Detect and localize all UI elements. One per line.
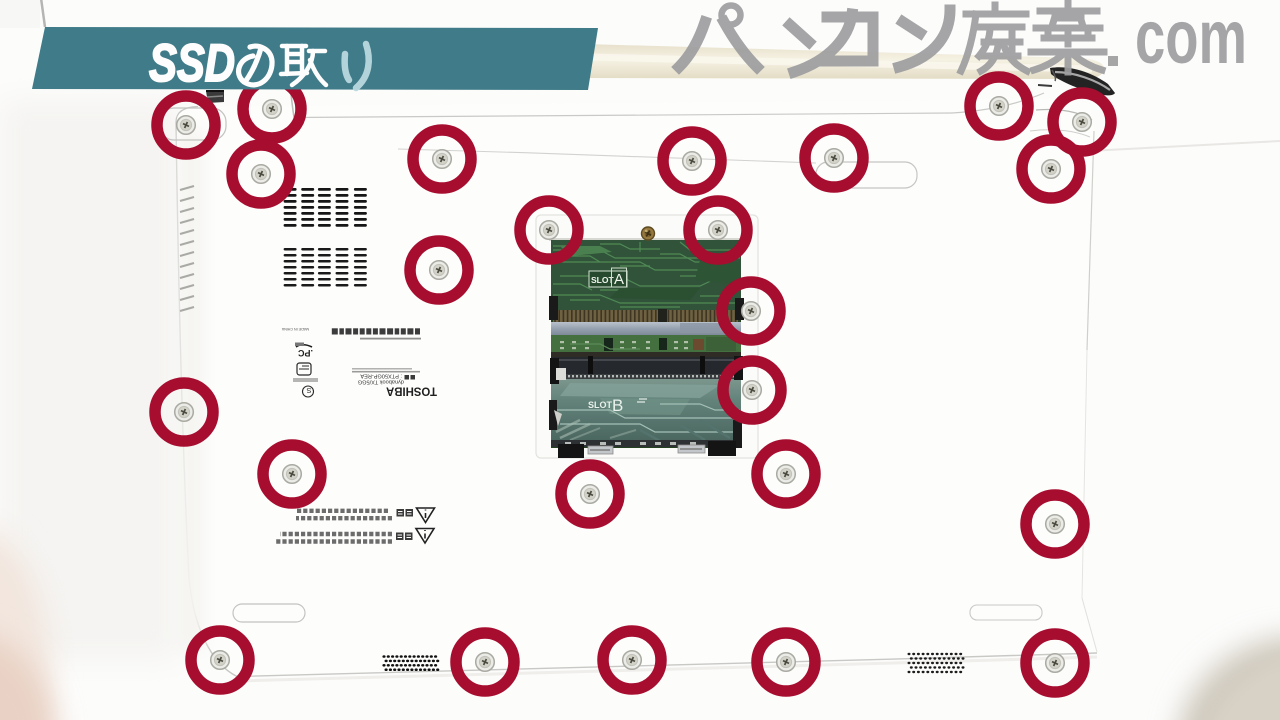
svg-text:.PC: .PC xyxy=(297,348,313,358)
svg-text:com: com xyxy=(1135,0,1247,80)
svg-text:: PTX50GP-REA: : PTX50GP-REA xyxy=(360,373,402,379)
svg-text:SSD: SSD xyxy=(149,34,235,93)
svg-text:SLOT: SLOT xyxy=(591,275,614,285)
svg-text:S: S xyxy=(306,386,311,395)
svg-text:A: A xyxy=(614,271,624,288)
svg-text:MADE IN CHINA: MADE IN CHINA xyxy=(281,327,309,331)
svg-text:TOSHIBA: TOSHIBA xyxy=(386,385,437,397)
svg-text:SLOT: SLOT xyxy=(588,400,613,410)
svg-text:B: B xyxy=(612,396,623,415)
